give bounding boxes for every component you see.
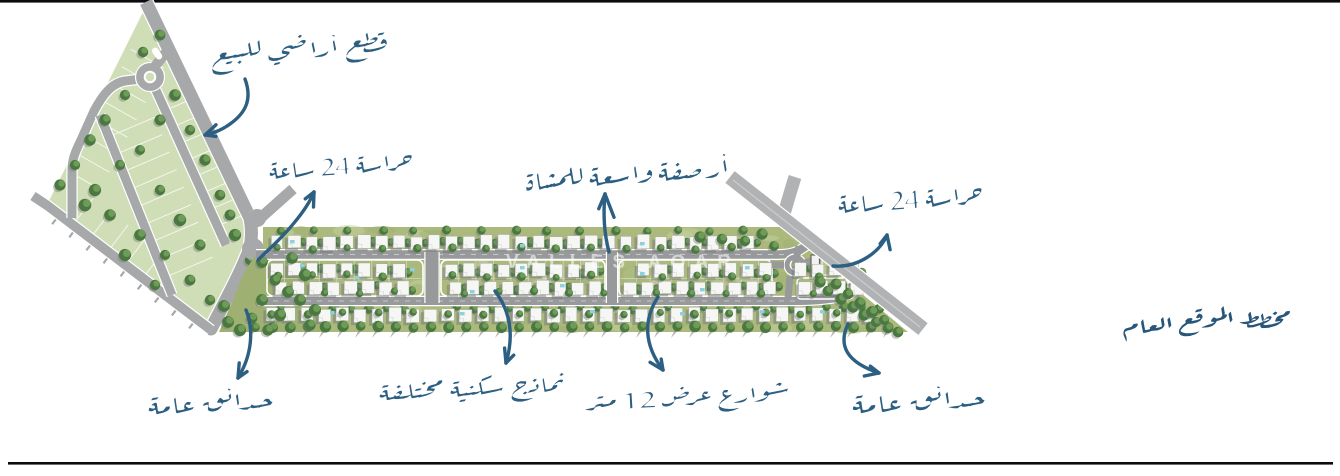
svg-text:VALLES AQAR: VALLES AQAR	[506, 252, 738, 273]
